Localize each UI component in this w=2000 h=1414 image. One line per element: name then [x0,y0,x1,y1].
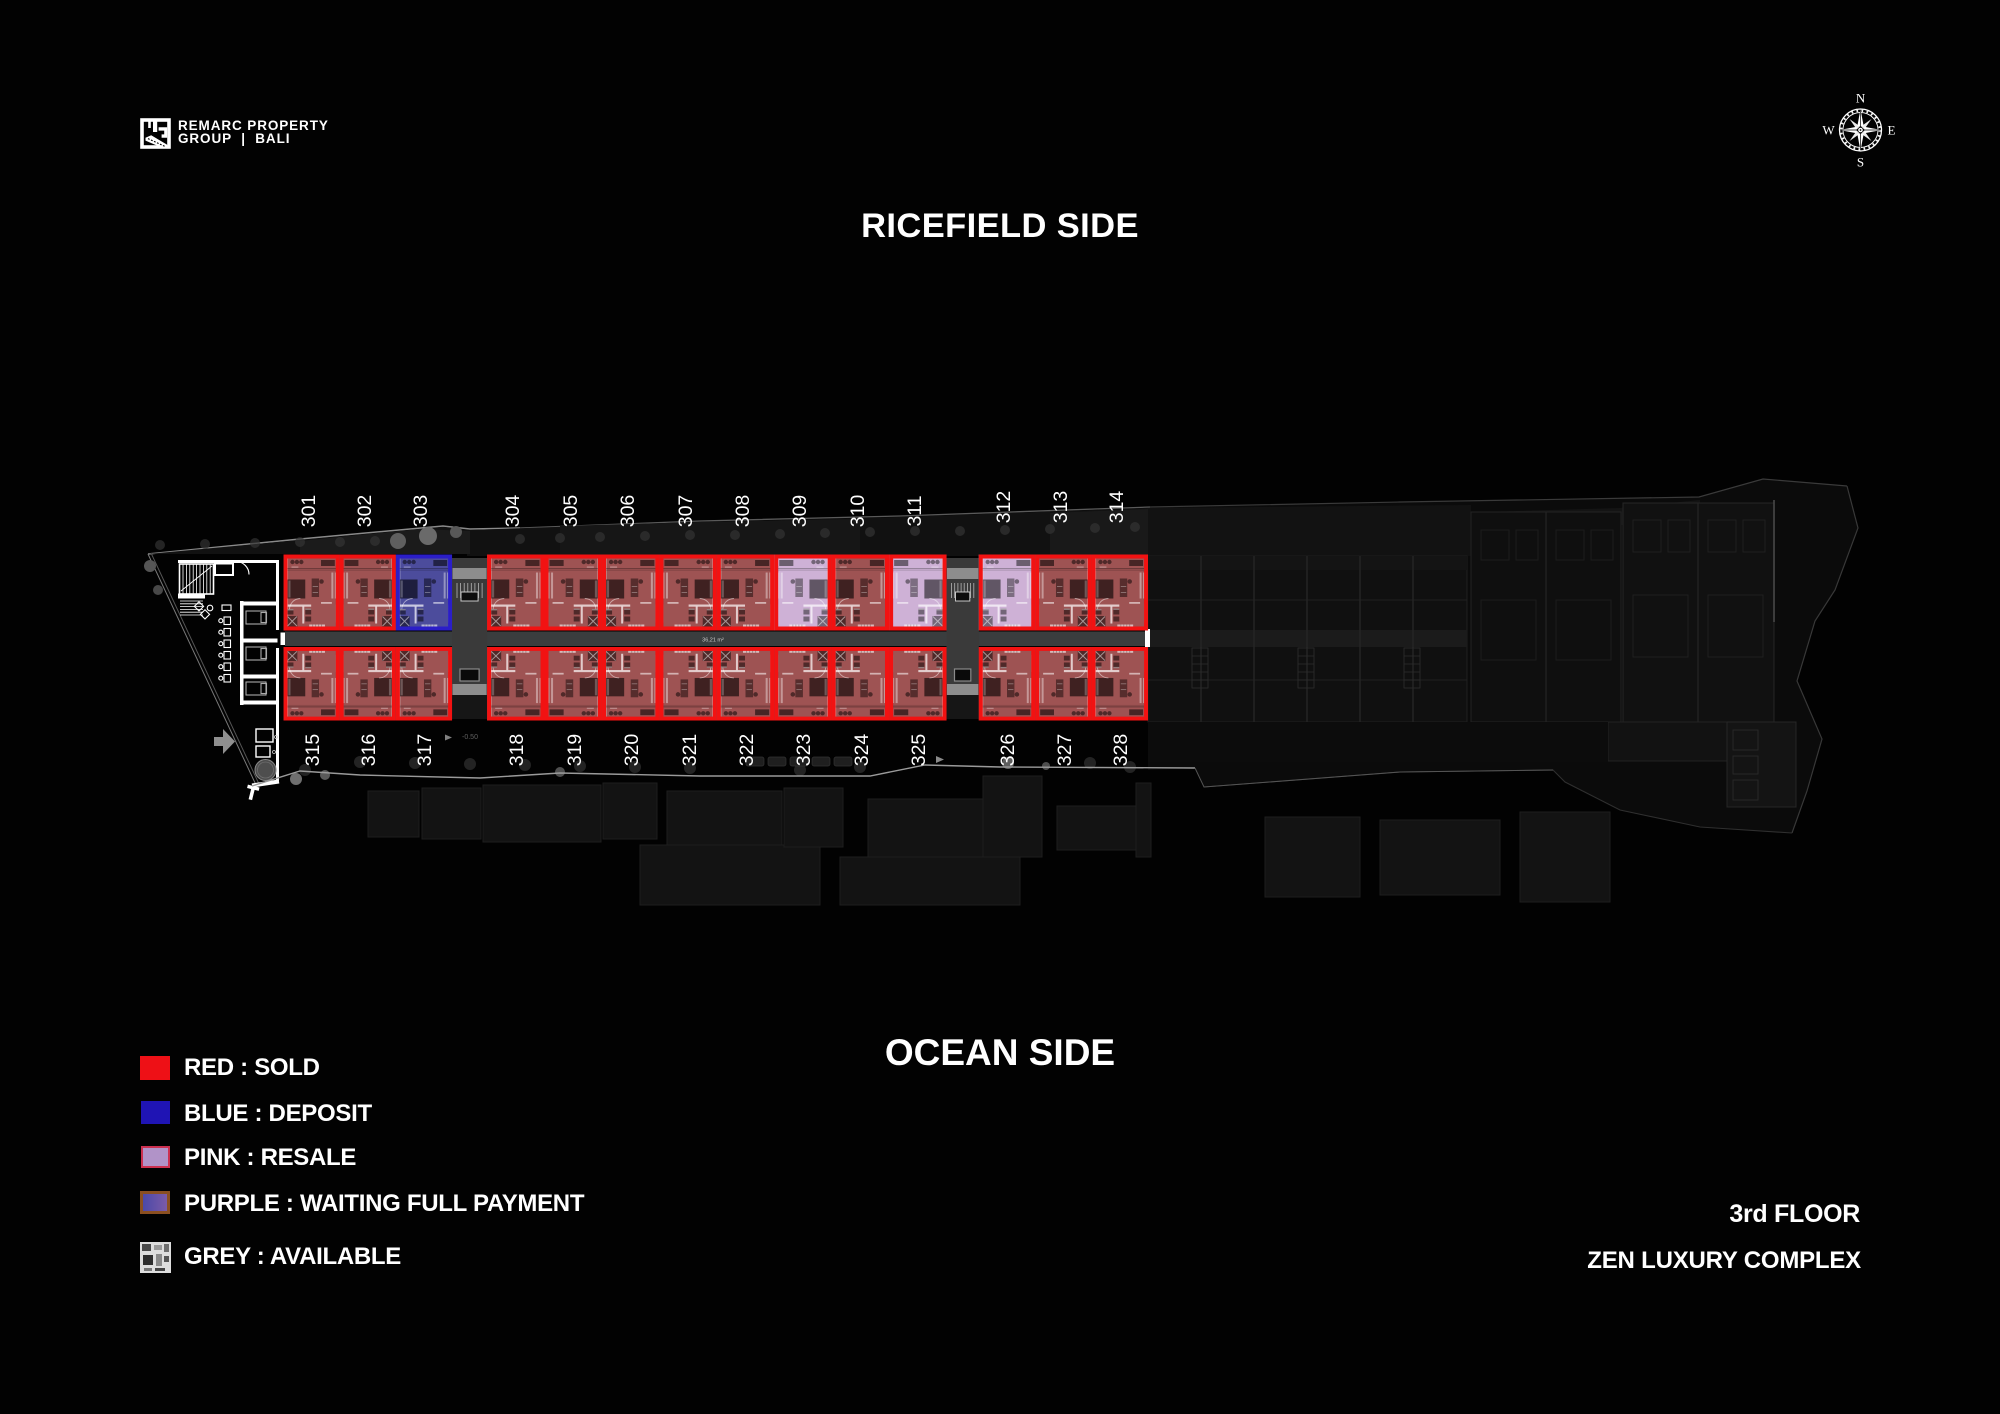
svg-text:322: 322 [736,734,758,767]
svg-text:326: 326 [997,734,1019,767]
svg-text:317: 317 [414,734,436,767]
svg-text:325: 325 [908,734,930,767]
svg-text:310: 310 [847,495,869,528]
svg-text:321: 321 [679,734,701,767]
svg-text:327: 327 [1054,734,1076,767]
svg-text:N: N [1856,91,1866,106]
svg-text:304: 304 [502,495,524,528]
svg-text:302: 302 [354,495,376,528]
svg-text:319: 319 [564,734,586,767]
svg-text:308: 308 [732,495,754,528]
svg-text:305: 305 [560,495,582,528]
svg-text:S: S [1857,155,1864,170]
svg-text:307: 307 [675,495,697,528]
svg-text:315: 315 [302,734,324,767]
svg-text:311: 311 [904,495,926,526]
svg-text:-0.50: -0.50 [462,734,478,741]
svg-text:313: 313 [1050,491,1072,524]
svg-text:316: 316 [358,734,380,767]
svg-text:312: 312 [993,491,1015,524]
svg-text:301: 301 [298,495,320,528]
svg-text:309: 309 [789,495,811,528]
svg-text:320: 320 [621,734,643,767]
svg-text:306: 306 [617,495,639,528]
svg-text:303: 303 [410,495,432,528]
svg-text:328: 328 [1110,734,1132,767]
svg-text:318: 318 [506,734,528,767]
svg-text:W: W [1822,123,1835,138]
svg-text:314: 314 [1106,491,1128,524]
svg-text:E: E [1888,123,1896,138]
svg-text:324: 324 [851,734,873,767]
svg-text:36,21 m²: 36,21 m² [702,638,724,644]
svg-text:323: 323 [793,734,815,767]
